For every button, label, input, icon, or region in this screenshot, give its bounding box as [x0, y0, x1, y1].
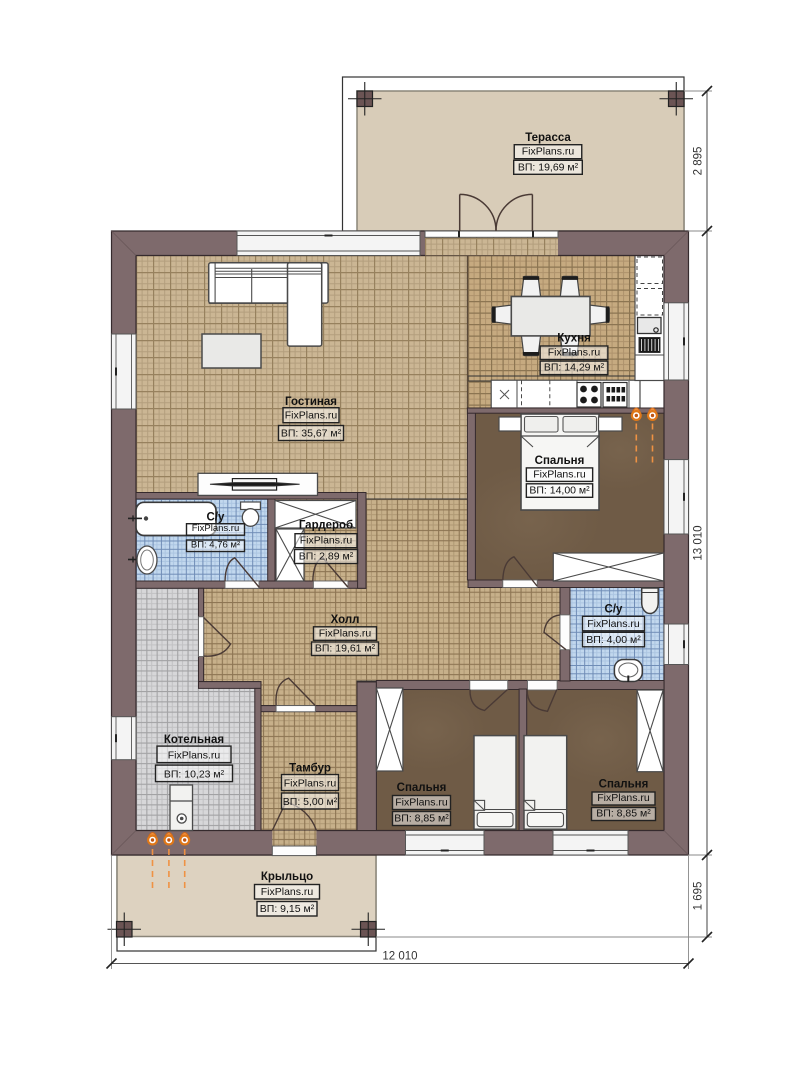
svg-text:Спальня: Спальня: [535, 455, 585, 467]
svg-text:Гардероб: Гардероб: [299, 520, 353, 532]
svg-text:FixPlans.ru: FixPlans.ru: [261, 886, 314, 898]
svg-text:2 895: 2 895: [693, 147, 705, 176]
svg-text:Спальня: Спальня: [599, 779, 649, 791]
svg-text:Холл: Холл: [331, 614, 360, 626]
svg-text:ВП: 19,61 м²: ВП: 19,61 м²: [315, 643, 376, 655]
svg-text:FixPlans.ru: FixPlans.ru: [597, 792, 650, 804]
svg-text:ВП: 19,69 м²: ВП: 19,69 м²: [518, 161, 579, 173]
svg-text:Гостиная: Гостиная: [285, 396, 337, 408]
svg-text:FixPlans.ru: FixPlans.ru: [395, 797, 448, 809]
svg-text:С/у: С/у: [605, 604, 624, 616]
svg-text:Спальня: Спальня: [397, 782, 447, 794]
svg-text:ВП: 2,89 м²: ВП: 2,89 м²: [299, 551, 354, 563]
svg-text:Терасса: Терасса: [525, 132, 571, 144]
svg-text:ВП: 4,76 м²: ВП: 4,76 м²: [191, 540, 240, 551]
svg-text:FixPlans.ru: FixPlans.ru: [285, 410, 338, 422]
svg-text:Котельная: Котельная: [164, 734, 224, 746]
svg-text:ВП: 14,29 м²: ВП: 14,29 м²: [544, 362, 605, 374]
svg-text:ВП: 4,00 м²: ВП: 4,00 м²: [586, 634, 641, 646]
svg-text:FixPlans.ru: FixPlans.ru: [533, 468, 586, 480]
svg-text:ВП: 9,15 м²: ВП: 9,15 м²: [260, 903, 315, 915]
svg-text:ВП: 8,85 м²: ВП: 8,85 м²: [394, 813, 449, 825]
svg-text:FixPlans.ru: FixPlans.ru: [300, 535, 353, 547]
svg-text:ВП: 35,67 м²: ВП: 35,67 м²: [281, 428, 342, 440]
svg-text:ВП: 10,23 м²: ВП: 10,23 м²: [164, 769, 225, 781]
svg-text:13 010: 13 010: [693, 525, 705, 560]
svg-text:С/у: С/у: [207, 512, 226, 524]
svg-text:Тамбур: Тамбур: [289, 763, 331, 775]
svg-text:FixPlans.ru: FixPlans.ru: [319, 627, 372, 639]
svg-text:Крыльцо: Крыльцо: [261, 871, 313, 883]
svg-text:FixPlans.ru: FixPlans.ru: [522, 146, 575, 158]
svg-text:ВП: 5,00 м²: ВП: 5,00 м²: [283, 796, 338, 808]
svg-text:FixPlans.ru: FixPlans.ru: [587, 618, 640, 630]
svg-text:FixPlans.ru: FixPlans.ru: [168, 750, 221, 762]
svg-text:Кухня: Кухня: [557, 333, 591, 345]
svg-text:FixPlans.ru: FixPlans.ru: [284, 778, 337, 790]
svg-text:FixPlans.ru: FixPlans.ru: [548, 347, 601, 359]
svg-text:ВП: 8,85 м²: ВП: 8,85 м²: [596, 808, 651, 820]
svg-text:FixPlans.ru: FixPlans.ru: [192, 523, 240, 534]
svg-text:12 010: 12 010: [382, 951, 417, 963]
svg-text:1 695: 1 695: [693, 882, 705, 911]
svg-text:ВП: 14,00 м²: ВП: 14,00 м²: [529, 484, 590, 496]
